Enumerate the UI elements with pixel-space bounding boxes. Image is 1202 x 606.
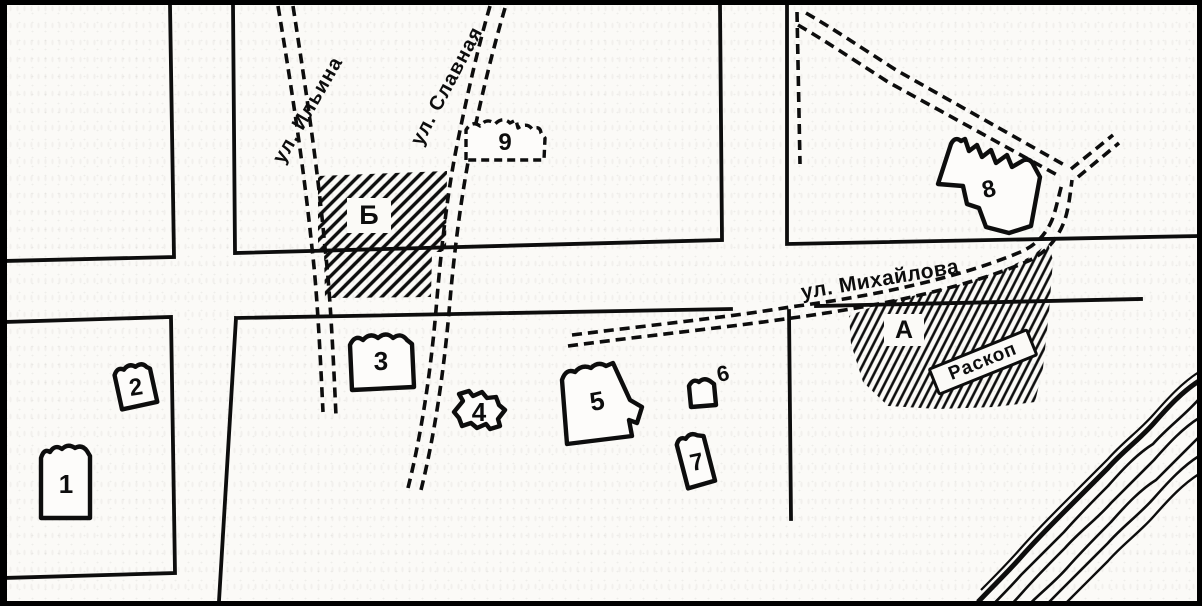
block-bottom-middle — [219, 309, 731, 601]
block-top-left — [3, 5, 174, 261]
river — [978, 372, 1199, 606]
map-linework — [0, 0, 1202, 606]
city-blocks — [3, 5, 1198, 601]
block-bottom-left — [3, 317, 175, 578]
street-line-right-vertical — [789, 311, 791, 519]
building-2-label: 2 — [118, 370, 155, 407]
city-plan-map: ул. Ильина ул. Славная ул. Михайлова Б А… — [0, 0, 1202, 606]
building-3-label: 3 — [365, 345, 397, 377]
building-6-label: 6 — [704, 355, 742, 393]
building-7-label: 7 — [678, 444, 716, 482]
building-9-label: 9 — [489, 127, 521, 159]
building-1-label: 1 — [50, 468, 82, 500]
area-label-b: Б — [347, 198, 391, 233]
area-label-a: А — [884, 314, 924, 346]
hatch-area-b — [318, 171, 447, 298]
building-4-label: 4 — [463, 396, 495, 428]
building-5-label: 5 — [578, 382, 615, 419]
